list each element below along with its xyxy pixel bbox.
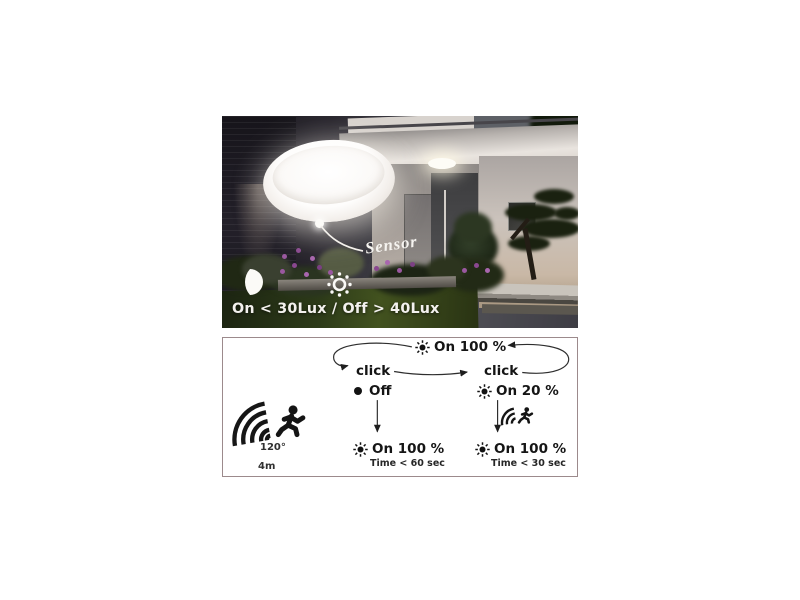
lux-threshold-label: On < 30Lux / Off > 40Lux (232, 301, 440, 317)
sun-on-icon (353, 442, 368, 457)
state-on-100-label: On 100 % (434, 339, 506, 355)
sensor-callout-line (222, 116, 578, 328)
sun-on-icon (415, 340, 430, 355)
click-left-label: click (356, 363, 390, 379)
state-on-20-label: On 20 % (496, 383, 559, 399)
state-motion-left: On 100 % (353, 441, 444, 457)
product-image: Sensor On < 30Lux / Off > 40Lux (0, 0, 800, 600)
state-on-100: On 100 % (415, 339, 506, 355)
daylight-sensor-icon (326, 271, 353, 298)
state-off: Off (352, 383, 391, 399)
motion-left-time-label: Time < 60 sec (370, 458, 445, 469)
motion-right-time-label: Time < 30 sec (491, 458, 566, 469)
off-dot-icon (354, 387, 362, 395)
mode-diagram: On 100 % click click Off On 20 % On 100 … (222, 337, 578, 477)
running-person-icon-small (519, 407, 532, 422)
arrow-click-to-click (394, 372, 467, 375)
state-motion-right: On 100 % (475, 441, 566, 457)
state-on-20: On 20 % (477, 383, 559, 399)
motion-sensor-icon-small (502, 409, 516, 426)
sensor-angle-label: 120° (260, 442, 286, 453)
state-motion-left-label: On 100 % (372, 441, 444, 457)
state-motion-right-label: On 100 % (494, 441, 566, 457)
sun-on-icon (477, 384, 492, 399)
house-photo: Sensor On < 30Lux / Off > 40Lux (222, 116, 578, 328)
sensor-range-label: 4m (258, 461, 275, 472)
motion-sensor-icon (234, 404, 270, 446)
moon-icon (238, 266, 266, 298)
sun-on-icon (475, 442, 490, 457)
state-off-label: Off (369, 383, 391, 399)
running-person-icon (278, 405, 303, 434)
click-right-label: click (484, 363, 518, 379)
